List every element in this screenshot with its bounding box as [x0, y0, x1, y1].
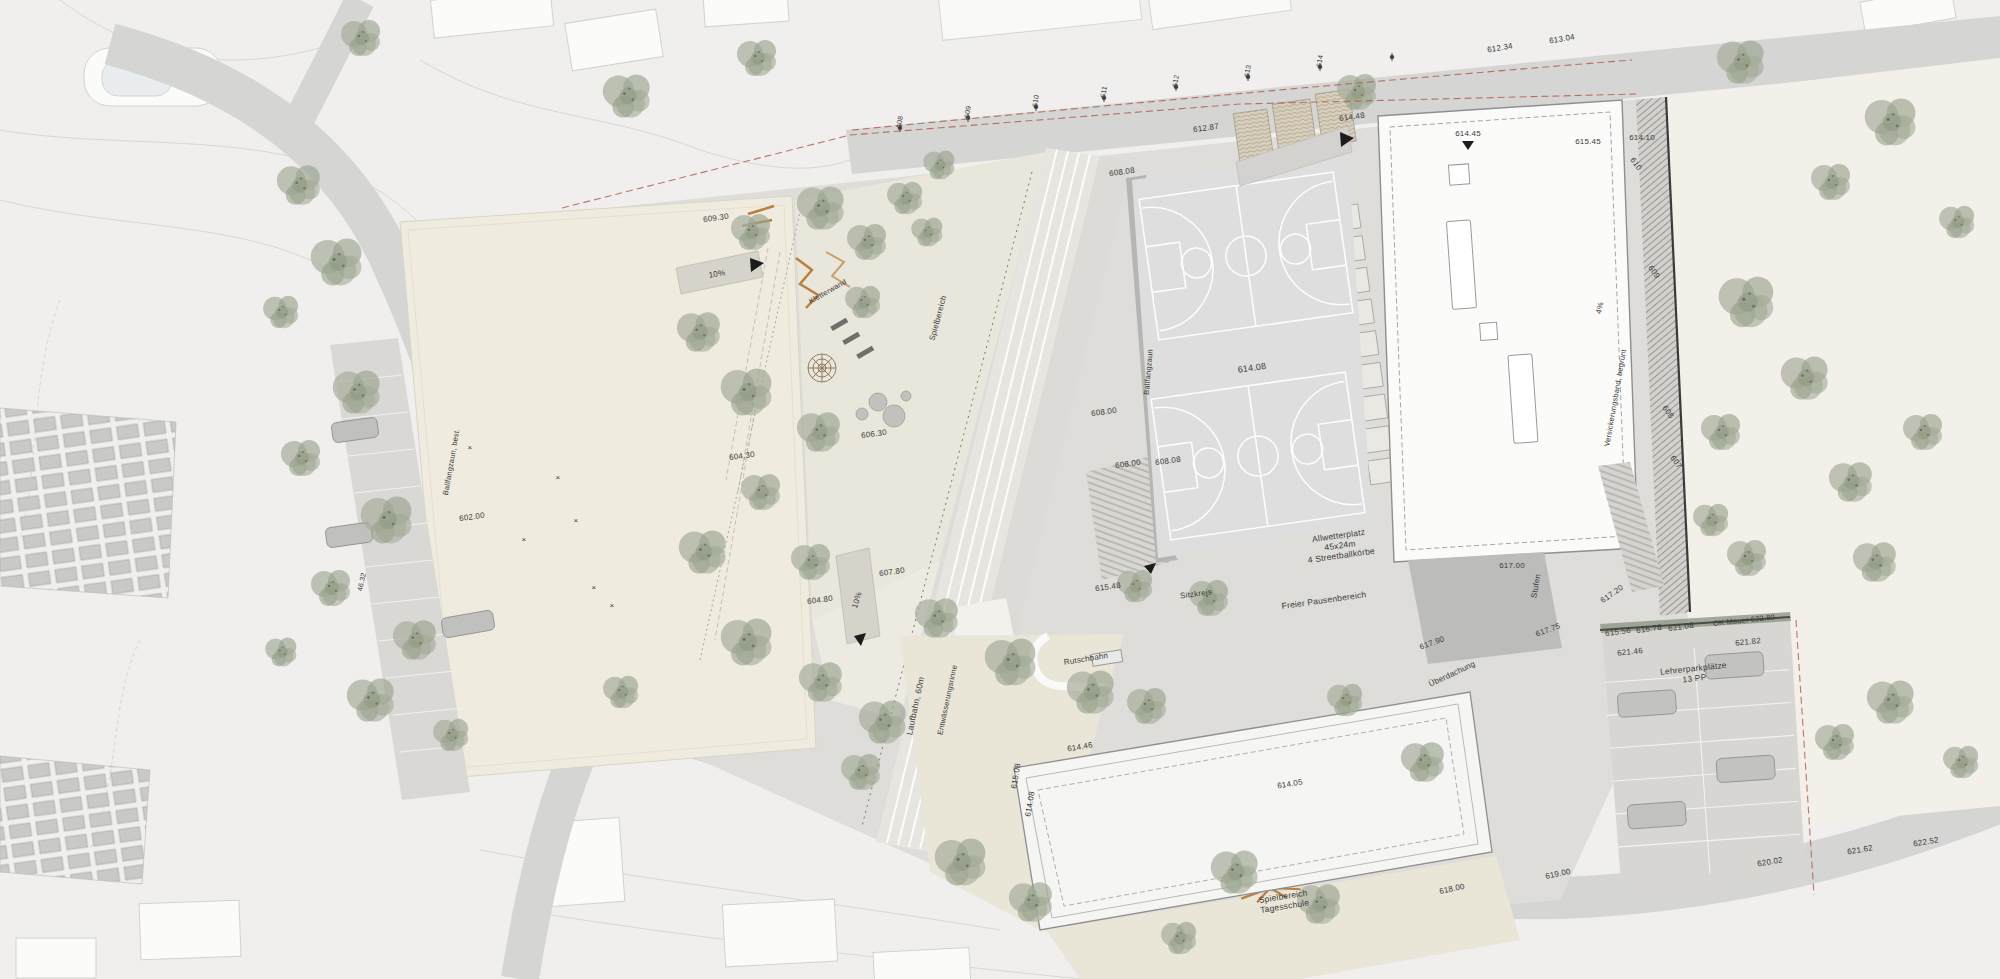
entrance-plaza	[1408, 552, 1562, 664]
parking-east	[1600, 612, 1806, 898]
site-plan: 608609610611612613614612.34613.04612.876…	[0, 0, 2000, 979]
site-plan-drawing	[0, 0, 2000, 979]
climbing-net	[808, 354, 836, 382]
gym-building	[1378, 100, 1638, 562]
basketball-courts	[1132, 150, 1372, 558]
